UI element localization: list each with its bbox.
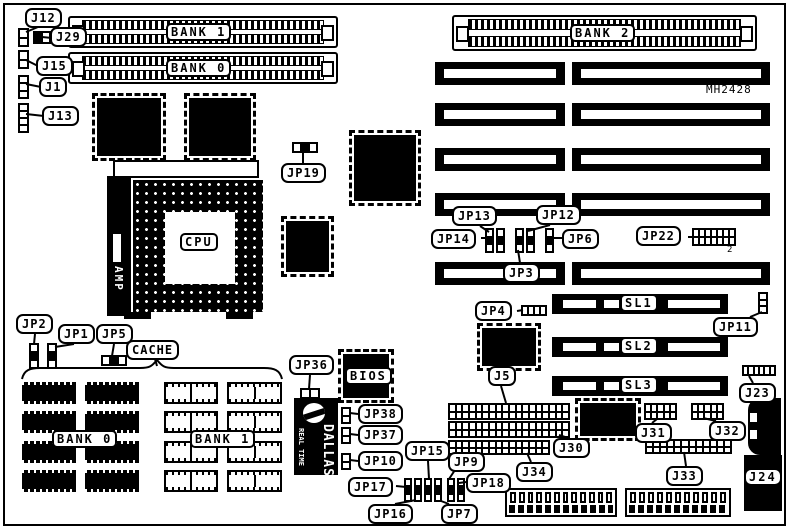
jumper-jp9 [447,478,455,502]
cache-bank0-label: BANK 0 [52,430,117,448]
socket-foot [124,312,151,319]
terminal-cells [629,491,727,504]
jumper-jp13 [496,228,505,253]
label-jp9: JP9 [448,452,485,472]
label-jp15: JP15 [405,441,450,461]
label-j34: J34 [516,462,553,482]
cache-chip [22,470,76,492]
jumper-jp15 [424,478,432,502]
label-jp12: JP12 [536,205,581,225]
label-jp11: JP11 [713,317,758,337]
label-j1: J1 [39,77,67,97]
jumper-jp5 [101,355,127,366]
slot-segment [563,343,596,351]
terminal-strip [625,488,731,517]
cache-chip [22,382,76,404]
jumper-jp38 [341,407,351,424]
terminal-pins [629,505,727,513]
jumper-jp14 [485,228,494,253]
header-jp22 [692,228,736,246]
label-jp2: JP2 [16,314,53,334]
label-j31: J31 [635,423,672,443]
connector-pin [750,430,757,439]
socket-foot [226,312,253,319]
keyboard-connector [748,398,781,455]
isa-slot-short [435,62,565,85]
lever-slot [113,234,121,262]
header-jp4 [521,305,547,316]
slot-segment [563,382,596,390]
label-jp18: JP18 [466,473,511,493]
slot-segment [563,300,596,308]
slot-segment [604,382,619,390]
jumper-jp1 [47,343,57,369]
connector-pin [750,413,757,422]
slot-segment [668,343,720,351]
isa-slot-long [572,62,770,85]
rtc-brand: DALLAS [320,424,335,477]
jumper-jp11 [758,292,768,314]
cpu-lever-brand: AMP [112,266,125,292]
label-jp37: JP37 [358,425,403,445]
label-jp19: JP19 [281,163,326,183]
jumper-jp3 [515,228,524,253]
header-j30 [448,421,570,438]
cache-bank1-label: BANK 1 [190,430,255,448]
label-jp1: JP1 [58,324,95,344]
isa-slot-long [572,148,770,171]
qfp-chip [354,135,416,201]
label-j29: J29 [50,27,87,47]
label-jp3: JP3 [503,263,540,283]
jumper-jp10 [341,453,351,470]
label-jp10: JP10 [358,451,403,471]
dallas-logo-icon [303,403,325,423]
cache-chip [85,382,139,404]
label-jp36: JP36 [289,355,334,375]
jumper-jp6 [545,228,554,253]
label-jp6: JP6 [562,229,599,249]
label-j32: J32 [709,421,746,441]
jumper-jp36 [300,388,320,399]
qfp-chip [482,328,536,366]
sl3-label: SL3 [620,376,658,394]
header-j31 [644,403,677,420]
cpu-socket-top-bar [113,160,259,178]
cpu-label: CPU [180,233,218,251]
jumper-jp37 [341,427,351,444]
bank0-label: BANK 0 [166,59,231,77]
label-j30: J30 [553,438,590,458]
label-j5: J5 [488,366,516,386]
simm-latch [321,25,334,41]
jumper-jp18 [457,478,465,502]
jumper-jp12 [526,228,535,253]
bank2-label: BANK 2 [570,24,635,42]
slot-segment [668,382,720,390]
isa-slot-short [435,103,565,126]
qfp-chip [189,98,251,156]
jumper-jp19 [292,142,318,153]
label-j12: J12 [25,8,62,28]
simm-latch [321,61,334,77]
jumper-jp2 [29,343,39,369]
header-j32 [691,403,724,420]
terminal-cells [509,491,613,504]
jp22-pin2-label: 2 [727,245,733,255]
isa-slot-long [572,103,770,126]
sl1-label: SL1 [620,294,658,312]
cpu-zif-lever: AMP [107,176,131,316]
isa-slot-long [572,193,770,216]
cache-socket [227,382,282,404]
cache-socket [164,470,218,492]
simm-latch [72,61,85,77]
sl2-label: SL2 [620,337,658,355]
jumper-jp16 [414,478,422,502]
isa-slot-short [435,148,565,171]
label-j15: J15 [36,56,73,76]
header-j23 [742,365,776,376]
qfp-chip [286,221,329,272]
jumper-jp7 [434,478,442,502]
header-j13 [18,103,29,133]
label-jp4: JP4 [475,301,512,321]
label-jp22: JP22 [636,226,681,246]
slot-segment [668,300,720,308]
motherboard-diagram: BANK 1 BANK 0 BANK 2 MH2428 J12 J29 J15 … [0,0,791,531]
simm-latch [456,26,469,42]
header-j12 [18,28,29,47]
bank1-label: BANK 1 [166,23,231,41]
cache-socket [164,382,218,404]
qfp-chip [97,98,161,156]
header-j1 [18,75,29,99]
isa-slot-long [572,262,770,285]
terminal-pins [509,505,613,513]
label-j23: J23 [739,383,776,403]
jumper-jp17 [404,478,412,502]
rtc-type: REAL TIME [297,428,305,466]
simm-latch [740,26,753,42]
label-jp16: JP16 [368,504,413,524]
rtc-chip: DALLAS REAL TIME [294,398,338,475]
header-j5 [448,403,570,420]
label-jp7: JP7 [441,504,478,524]
cache-chip [85,470,139,492]
label-cache: CACHE [126,340,179,360]
bios-label: BIOS [345,367,392,385]
slot-segment [604,343,619,351]
label-jp14: JP14 [431,229,476,249]
isa-slot-short [435,262,565,285]
label-jp17: JP17 [348,477,393,497]
label-j13: J13 [42,106,79,126]
header-j15 [18,50,29,69]
label-j24: J24 [744,468,782,486]
jumper-j29 [33,31,51,44]
label-jp13: JP13 [452,206,497,226]
slot-segment [604,300,619,308]
terminal-strip [505,488,617,517]
cache-socket [227,470,282,492]
label-jp38: JP38 [358,404,403,424]
qfp-chip [580,403,636,436]
label-j33: J33 [666,466,703,486]
